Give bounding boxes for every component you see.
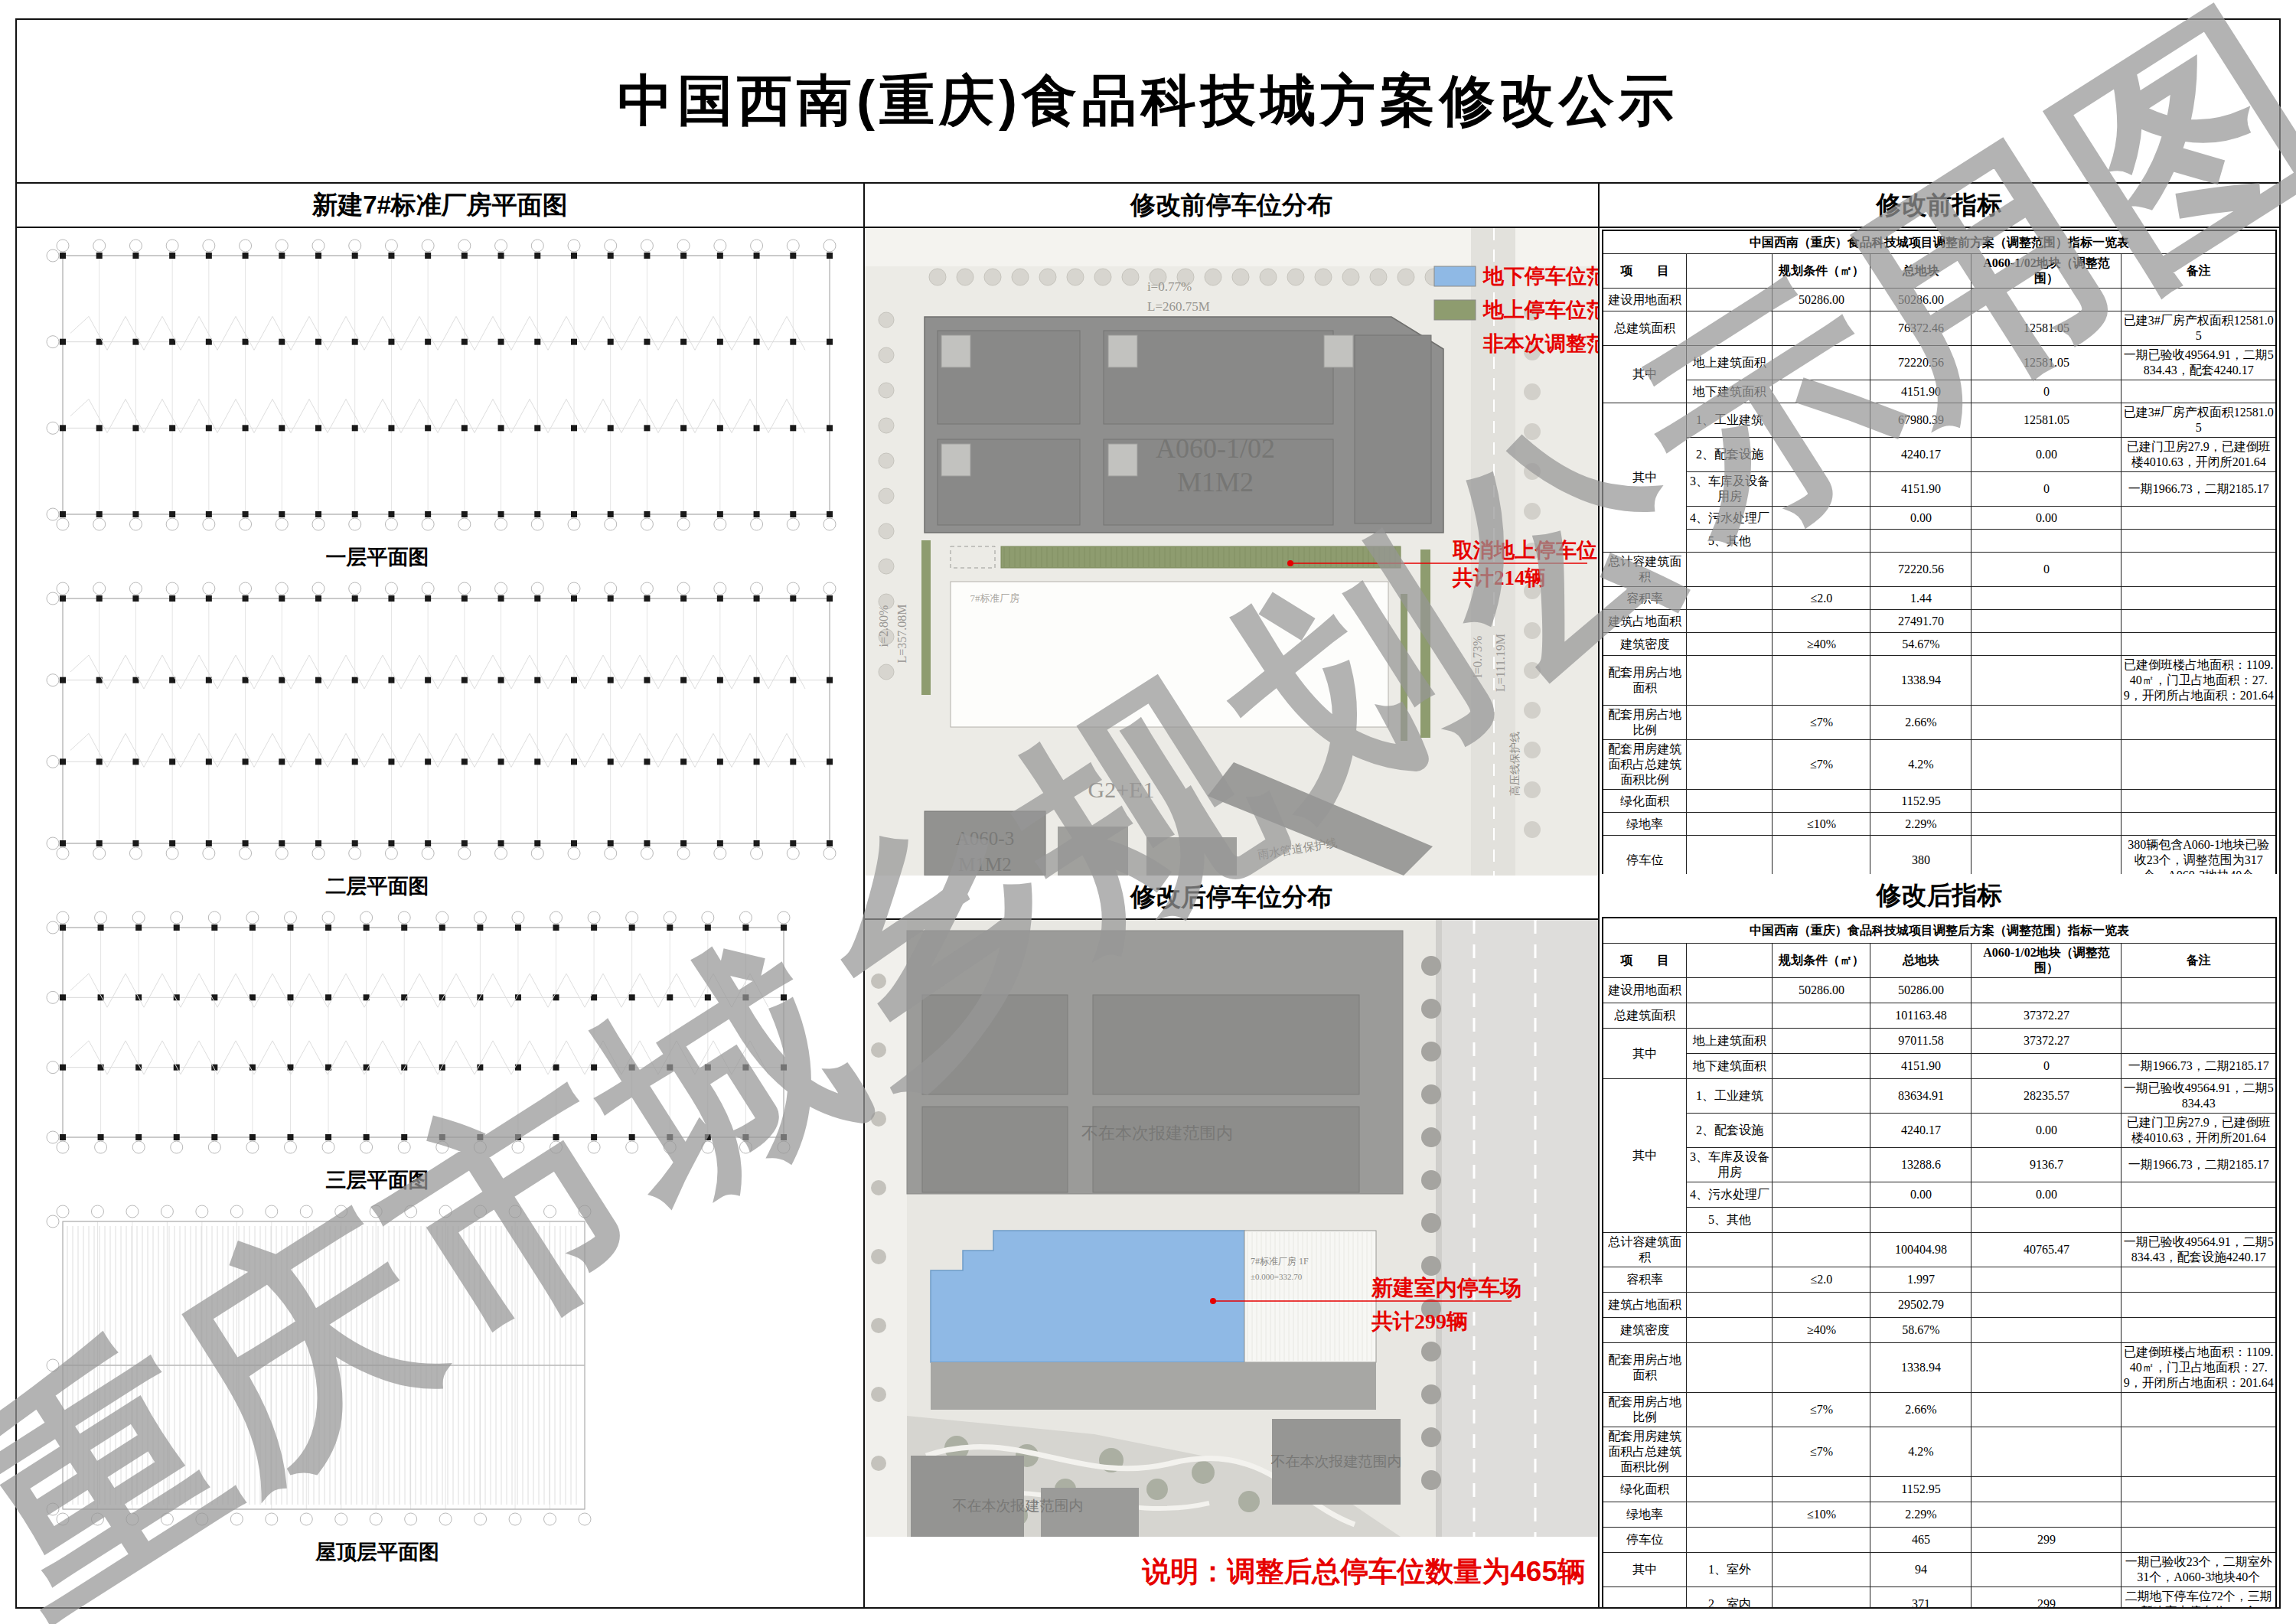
section-header-parking-before: 修改前停车位分布: [865, 184, 1600, 227]
table-cell: 83634.91: [1870, 1079, 1971, 1114]
table-cell: 其中: [1603, 1029, 1687, 1079]
table-cell: [1687, 254, 1773, 289]
indicator-table: 中国西南（重庆）食品科技城项目调整后方案（调整范围）指标一览表项 目规划条件（㎡…: [1602, 917, 2277, 1607]
table-cell: 2、配套设施: [1687, 438, 1773, 472]
map-label: i=0.77%: [1147, 279, 1192, 294]
legend-label: 地下停车位范围: [1482, 265, 1598, 288]
table-cell: [1687, 289, 1773, 311]
table-cell: [1971, 587, 2122, 610]
section-header-floorplans: 新建7#标准厂房平面图: [17, 184, 865, 227]
table-cell: 地上建筑面积: [1687, 1029, 1773, 1054]
table-cell: 绿化面积: [1603, 1477, 1687, 1502]
table-cell: 1338.94: [1870, 656, 1971, 706]
table-cell: [1971, 1393, 2122, 1427]
table-cell: 一期已验收49564.91，二期5834.43，配套4240.17: [2122, 346, 2276, 380]
table-cell: 配套用房占地比例: [1603, 1393, 1687, 1427]
plan-label: 一层平面图: [29, 540, 856, 571]
table-cell: 中国西南（重庆）食品科技城项目调整后方案（调整范围）指标一览表: [1603, 918, 2276, 944]
table-cell: 总地块: [1870, 254, 1971, 289]
floor-plan-drawing: [29, 906, 794, 1160]
table-cell: [1971, 813, 2122, 836]
table-cell: 0: [1971, 472, 2122, 507]
map-label: 高压线保护线: [1508, 732, 1521, 796]
table-cell: [1687, 633, 1773, 656]
table-cell: 1152.95: [1870, 790, 1971, 813]
table-cell: 72220.56: [1870, 346, 1971, 380]
table-cell: 4.2%: [1870, 740, 1971, 790]
table-cell: 0.00: [1971, 1114, 2122, 1148]
table-cell: [1687, 1318, 1773, 1343]
table-cell: 5、其他: [1687, 530, 1773, 553]
table-cell: [1773, 553, 1870, 587]
table-cell: [1687, 553, 1773, 587]
table-cell: 0: [1971, 380, 2122, 403]
table-cell: 3、车库及设备用房: [1687, 472, 1773, 507]
table-cell: [2122, 740, 2276, 790]
table-cell: 380辆包含A060-1地块已验收23个，调整范围为317个，A060-3地块4…: [2122, 836, 2276, 875]
table-cell: [1687, 1502, 1773, 1528]
table-cell: [1870, 1208, 1971, 1233]
excluded-area-label: 不在本次报建范围内: [953, 1498, 1084, 1514]
table-cell: [1687, 1267, 1773, 1293]
table-cell: 一期已验收49564.91，二期5834.43: [2122, 1079, 2276, 1114]
table-cell: 12581.05: [1971, 311, 2122, 346]
content-row: 一层平面图二层平面图三层平面图屋顶层平面图 i=0.77%L=260.75MA0…: [17, 228, 2279, 1607]
table-cell: 绿地率: [1603, 1502, 1687, 1528]
table-cell: 12581.05: [1971, 403, 2122, 438]
plan-label: 屋顶层平面图: [29, 1535, 856, 1566]
table-cell: [2122, 380, 2276, 403]
indicator-table-after: 中国西南（重庆）食品科技城项目调整后方案（调整范围）指标一览表项 目规划条件（㎡…: [1600, 917, 2279, 1607]
table-cell: 100404.98: [1870, 1233, 1971, 1267]
table-cell: 地下建筑面积: [1687, 1054, 1773, 1079]
table-cell: 建筑密度: [1603, 1318, 1687, 1343]
indoor-parking-building: [931, 1231, 1244, 1362]
table-cell: 67980.39: [1870, 403, 1971, 438]
table-cell: 其中: [1603, 1553, 1687, 1587]
table-cell: 建筑占地面积: [1603, 610, 1687, 633]
floor-plan-drawing: [29, 1200, 595, 1532]
floor-plan-block: 屋顶层平面图: [29, 1200, 856, 1566]
table-cell: [1687, 978, 1773, 1003]
table-cell: 0.00: [1971, 507, 2122, 530]
table-cell: 配套用房建筑面积占总建筑面积比例: [1603, 1427, 1687, 1477]
map-label: 7#标准厂房 1F: [1251, 1256, 1309, 1267]
map-label: M1M2: [1177, 467, 1254, 497]
table-cell: 规划条件（㎡）: [1773, 254, 1870, 289]
table-cell: [1971, 656, 2122, 706]
table-cell: 1152.95: [1870, 1477, 1971, 1502]
map-label: A060-3: [956, 828, 1014, 849]
floor-plan-drawing: [29, 577, 840, 866]
table-cell: 其中: [1603, 403, 1687, 553]
table-cell: 总计容建筑面积: [1603, 553, 1687, 587]
table-cell: [1971, 1477, 2122, 1502]
table-cell: 地上建筑面积: [1687, 346, 1773, 380]
table-cell: 94: [1870, 1553, 1971, 1587]
table-cell: 54.67%: [1870, 633, 1971, 656]
table-cell: [2122, 1393, 2276, 1427]
table-cell: [1773, 610, 1870, 633]
page-title: 中国西南(重庆)食品科技城方案修改公示: [618, 64, 1678, 138]
table-cell: [2122, 706, 2276, 740]
table-cell: 已建3#厂房产权面积12581.05: [2122, 311, 2276, 346]
table-cell: [2122, 1427, 2276, 1477]
table-cell: [1687, 610, 1773, 633]
table-cell: 1.997: [1870, 1267, 1971, 1293]
table-cell: [1773, 1477, 1870, 1502]
table-cell: 配套用房占地面积: [1603, 1343, 1687, 1393]
table-cell: [2122, 1182, 2276, 1208]
table-cell: ≤7%: [1773, 740, 1870, 790]
table-cell: [1971, 1553, 2122, 1587]
table-cell: 37372.27: [1971, 1029, 2122, 1054]
table-cell: 9136.7: [1971, 1148, 2122, 1182]
table-cell: [1773, 656, 1870, 706]
table-cell: [1687, 1477, 1773, 1502]
table-cell: [1687, 740, 1773, 790]
table-cell: [1687, 944, 1773, 978]
table-cell: 总计容建筑面积: [1603, 1233, 1687, 1267]
table-cell: [1773, 1293, 1870, 1318]
section-header-indicators-before: 修改前指标: [1600, 184, 2279, 227]
table-cell: [2122, 978, 2276, 1003]
legend-label: 地上停车位范围: [1482, 298, 1598, 321]
table-cell: 4151.90: [1870, 1054, 1971, 1079]
map-label: L=260.75M: [1147, 299, 1210, 314]
map-label: A060-1/02: [1156, 433, 1275, 464]
table-cell: 13288.6: [1870, 1148, 1971, 1182]
table-cell: 4、污水处理厂: [1687, 1182, 1773, 1208]
table-cell: [2122, 1003, 2276, 1029]
table-cell: [1687, 1003, 1773, 1029]
map-label: 7#标准厂房: [970, 592, 1020, 604]
table-cell: [1687, 587, 1773, 610]
table-cell: 1、工业建筑: [1687, 403, 1773, 438]
table-cell: [1971, 1208, 2122, 1233]
floor-plan-drawing: [29, 234, 840, 537]
floor-plan-block: 一层平面图: [29, 234, 856, 571]
table-cell: 总建筑面积: [1603, 1003, 1687, 1029]
table-cell: [1773, 1553, 1870, 1587]
table-cell: 299: [1971, 1528, 2122, 1553]
table-cell: 建筑密度: [1603, 633, 1687, 656]
parking-map-before: i=0.77%L=260.75MA060-1/02M1M27#标准厂房G2+E1…: [865, 228, 1598, 876]
annotation-new-parking: 共计299辆: [1371, 1309, 1468, 1333]
table-cell: ≤7%: [1773, 1427, 1870, 1477]
section-header-indicators-after: 修改后指标: [1600, 874, 2279, 917]
table-cell: [2122, 1528, 2276, 1553]
table-cell: 一期1966.73，二期2185.17: [2122, 1148, 2276, 1182]
table-cell: [1971, 530, 2122, 553]
table-cell: [1773, 1148, 1870, 1182]
table-cell: [1687, 1343, 1773, 1393]
table-cell: 建设用地面积: [1603, 289, 1687, 311]
table-cell: [1971, 1267, 2122, 1293]
table-cell: 一期已验收23个，二期室外31个，A060-3地块40个: [2122, 1553, 2276, 1587]
table-cell: [1773, 1208, 1870, 1233]
table-cell: [2122, 1267, 2276, 1293]
table-cell: [1773, 438, 1870, 472]
table-cell: 371: [1870, 1587, 1971, 1608]
section-headers: 新建7#标准厂房平面图 修改前停车位分布 修改前指标: [17, 184, 2279, 228]
table-cell: 配套用房建筑面积占总建筑面积比例: [1603, 740, 1687, 790]
table-cell: [2122, 587, 2276, 610]
table-cell: 建设用地面积: [1603, 978, 1687, 1003]
table-cell: 76372.46: [1870, 311, 1971, 346]
table-cell: 3、车库及设备用房: [1687, 1148, 1773, 1182]
legend-swatch: [1434, 266, 1476, 286]
table-cell: 停车位: [1603, 1528, 1687, 1553]
table-cell: 容积率: [1603, 1267, 1687, 1293]
table-cell: [1773, 1587, 1870, 1608]
section-header-parking-after: 修改后停车位分布: [865, 876, 1598, 920]
table-cell: ≤2.0: [1773, 1267, 1870, 1293]
table-cell: 中国西南（重庆）食品科技城项目调整前方案（调整范围）指标一览表: [1603, 230, 2276, 254]
table-cell: 已建倒班楼占地面积：1109.40㎡，门卫占地面积：27.9，开闭所占地面积：2…: [2122, 656, 2276, 706]
table-cell: 50286.00: [1773, 978, 1870, 1003]
table-cell: [1773, 1528, 1870, 1553]
map-label: L=357.08M: [895, 604, 908, 663]
table-cell: [1773, 1029, 1870, 1054]
table-cell: 2.29%: [1870, 1502, 1971, 1528]
table-cell: 一期已验收49564.91，二期5834.43，配套设施4240.17: [2122, 1233, 2276, 1267]
table-cell: 项 目: [1603, 944, 1687, 978]
table-cell: [2122, 1318, 2276, 1343]
title-band: 中国西南(重庆)食品科技城方案修改公示: [17, 20, 2279, 184]
table-cell: ≤7%: [1773, 706, 1870, 740]
table-cell: 97011.58: [1870, 1029, 1971, 1054]
table-cell: [2122, 1208, 2276, 1233]
table-cell: 1、室外: [1687, 1553, 1773, 1587]
table-cell: 1338.94: [1870, 1343, 1971, 1393]
table-cell: [1971, 1293, 2122, 1318]
table-cell: [1687, 836, 1773, 875]
site-map-before-drawing: i=0.77%L=260.75MA060-1/02M1M27#标准厂房G2+E1…: [865, 228, 1598, 876]
table-cell: 28235.57: [1971, 1079, 2122, 1114]
parking-map-after: 不在本次报建范围内7#标准厂房 1F±0.000=332.70新建室内停车场共计…: [865, 920, 1598, 1537]
table-cell: [2122, 507, 2276, 530]
table-cell: 4151.90: [1870, 472, 1971, 507]
table-cell: [1971, 610, 2122, 633]
table-cell: 72220.56: [1870, 553, 1971, 587]
table-cell: 2.29%: [1870, 813, 1971, 836]
table-cell: [2122, 1502, 2276, 1528]
plan-label: 二层平面图: [29, 869, 856, 900]
table-cell: 备注: [2122, 254, 2276, 289]
table-cell: 容积率: [1603, 587, 1687, 610]
public-notice-poster: 中国西南(重庆)食品科技城方案修改公示 新建7#标准厂房平面图 修改前停车位分布…: [0, 0, 2296, 1624]
table-cell: [1773, 311, 1870, 346]
table-cell: [1971, 740, 2122, 790]
table-cell: [1971, 1427, 2122, 1477]
table-cell: 2.66%: [1870, 706, 1971, 740]
map-label: i=2.80%: [877, 605, 890, 647]
table-cell: [1773, 1079, 1870, 1114]
table-cell: 4240.17: [1870, 1114, 1971, 1148]
table-cell: [1773, 380, 1870, 403]
table-cell: 地下建筑面积: [1687, 380, 1773, 403]
table-cell: [1971, 289, 2122, 311]
table-cell: [2122, 1477, 2276, 1502]
table-cell: [1971, 790, 2122, 813]
table-cell: [1687, 656, 1773, 706]
table-cell: [1687, 706, 1773, 740]
table-cell: [1773, 507, 1870, 530]
table-cell: [1971, 836, 2122, 875]
indicator-table-before: 中国西南（重庆）食品科技城项目调整前方案（调整范围）指标一览表项 目规划条件（㎡…: [1600, 228, 2279, 874]
table-cell: 停车位: [1603, 836, 1687, 875]
plan-label: 三层平面图: [29, 1163, 856, 1194]
table-cell: 配套用房占地面积: [1603, 656, 1687, 706]
table-cell: 37372.27: [1971, 1003, 2122, 1029]
annotation-cancel-parking: 共计214辆: [1452, 566, 1546, 589]
floor-plan-block: 二层平面图: [29, 577, 856, 900]
excluded-area-label: 不在本次报建范围内: [1081, 1123, 1233, 1143]
table-cell: [1687, 1293, 1773, 1318]
table-cell: [1687, 1427, 1773, 1477]
table-cell: [1773, 403, 1870, 438]
table-cell: 4240.17: [1870, 438, 1971, 472]
table-cell: 总建筑面积: [1603, 311, 1687, 346]
table-cell: [2122, 610, 2276, 633]
table-cell: 101163.48: [1870, 1003, 1971, 1029]
annotation-new-parking: 新建室内停车场: [1371, 1276, 1521, 1300]
table-cell: 29502.79: [1870, 1293, 1971, 1318]
table-cell: [2122, 633, 2276, 656]
table-cell: 4.2%: [1870, 1427, 1971, 1477]
table-cell: ≤2.0: [1773, 587, 1870, 610]
table-cell: [1971, 1318, 2122, 1343]
table-cell: 1、工业建筑: [1687, 1079, 1773, 1114]
table-cell: [1773, 472, 1870, 507]
table-cell: 2、室内: [1687, 1587, 1773, 1608]
table-cell: 40765.47: [1971, 1233, 2122, 1267]
table-cell: 1.44: [1870, 587, 1971, 610]
legend-label: 非本次调整范围: [1482, 332, 1598, 355]
floor-plan-block: 三层平面图: [29, 906, 856, 1194]
site-map-after-drawing: 不在本次报建范围内7#标准厂房 1F±0.000=332.70新建室内停车场共计…: [865, 920, 1598, 1537]
table-cell: 0.00: [1971, 438, 2122, 472]
floorplans-column: 一层平面图二层平面图三层平面图屋顶层平面图: [17, 228, 865, 1607]
table-cell: [1773, 790, 1870, 813]
map-label: M1M2: [958, 854, 1011, 875]
table-cell: 绿地率: [1603, 813, 1687, 836]
excluded-area-label: 不在本次报建范围内: [1271, 1453, 1402, 1469]
table-cell: 380: [1870, 836, 1971, 875]
table-cell: ≥40%: [1773, 633, 1870, 656]
table-cell: [1773, 1182, 1870, 1208]
table-cell: [1971, 1343, 2122, 1393]
table-cell: 299: [1971, 1587, 2122, 1608]
table-cell: ≤7%: [1773, 1393, 1870, 1427]
table-cell: [1773, 1114, 1870, 1148]
table-cell: 一期1966.73，二期2185.17: [2122, 1054, 2276, 1079]
table-cell: 其中: [1603, 346, 1687, 403]
table-cell: 备注: [2122, 944, 2276, 978]
table-cell: 0.00: [1971, 1182, 2122, 1208]
table-cell: 2、配套设施: [1687, 1114, 1773, 1148]
map-label: L=111.19M: [1494, 634, 1507, 692]
table-cell: 已建门卫房27.9，已建倒班楼4010.63，开闭所201.64: [2122, 438, 2276, 472]
table-cell: 0.00: [1870, 507, 1971, 530]
map-label: G2+E1: [1088, 777, 1155, 802]
table-cell: 0.00: [1870, 1182, 1971, 1208]
table-cell: [2122, 530, 2276, 553]
legend-swatch: [1434, 300, 1476, 320]
map-label: ±0.000=332.70: [1251, 1272, 1303, 1281]
table-cell: 二期地下停车位72个，三期新建室内停车位299个: [2122, 1587, 2276, 1608]
table-cell: [1971, 706, 2122, 740]
table-cell: 其中: [1603, 1079, 1687, 1233]
table-cell: [1773, 836, 1870, 875]
table-cell: 0: [1971, 553, 2122, 587]
table-cell: 一期1966.73，二期2185.17: [2122, 472, 2276, 507]
table-cell: 项 目: [1603, 254, 1687, 289]
table-cell: 配套用房占地比例: [1603, 706, 1687, 740]
table-cell: [1773, 1054, 1870, 1079]
table-cell: [1773, 1343, 1870, 1393]
table-cell: 27491.70: [1870, 610, 1971, 633]
table-cell: 规划条件（㎡）: [1773, 944, 1870, 978]
table-cell: [1603, 1587, 1687, 1608]
table-cell: 4、污水处理厂: [1687, 507, 1773, 530]
indicator-table: 中国西南（重庆）食品科技城项目调整前方案（调整范围）指标一览表项 目规划条件（㎡…: [1602, 230, 2277, 874]
table-cell: [1687, 1393, 1773, 1427]
table-cell: 2.66%: [1870, 1393, 1971, 1427]
table-cell: 0: [1971, 1054, 2122, 1079]
table-cell: [1687, 813, 1773, 836]
table-cell: [1687, 311, 1773, 346]
table-cell: 已建倒班楼占地面积：1109.40㎡，门卫占地面积：27.9，开闭所占地面积：2…: [2122, 1343, 2276, 1393]
table-cell: 12581.05: [1971, 346, 2122, 380]
table-cell: [1870, 530, 1971, 553]
table-cell: ≥40%: [1773, 1318, 1870, 1343]
table-cell: [1773, 1003, 1870, 1029]
table-cell: [1687, 1233, 1773, 1267]
table-cell: 50286.00: [1870, 289, 1971, 311]
table-cell: 4151.90: [1870, 380, 1971, 403]
table-cell: [1971, 1502, 2122, 1528]
table-cell: [1971, 633, 2122, 656]
table-cell: [2122, 790, 2276, 813]
table-cell: ≤10%: [1773, 1502, 1870, 1528]
indicator-tables-column: 中国西南（重庆）食品科技城项目调整前方案（调整范围）指标一览表项 目规划条件（㎡…: [1600, 228, 2279, 1607]
annotation-cancel-parking: 取消地上停车位: [1452, 539, 1597, 562]
document-frame: 中国西南(重庆)食品科技城方案修改公示 新建7#标准厂房平面图 修改前停车位分布…: [15, 18, 2281, 1609]
table-cell: [1773, 530, 1870, 553]
table-cell: A060-1/02地块（调整范围）: [1971, 944, 2122, 978]
table-cell: [2122, 553, 2276, 587]
table-cell: [1773, 1233, 1870, 1267]
map-label: i=0.73%: [1471, 636, 1484, 678]
table-cell: [2122, 289, 2276, 311]
table-cell: 465: [1870, 1528, 1971, 1553]
table-cell: 50286.00: [1870, 978, 1971, 1003]
table-cell: [1687, 790, 1773, 813]
table-cell: [2122, 1029, 2276, 1054]
table-cell: [2122, 1293, 2276, 1318]
table-cell: A060-1/02地块（调整范围）: [1971, 254, 2122, 289]
table-cell: [2122, 813, 2276, 836]
table-cell: ≤10%: [1773, 813, 1870, 836]
total-parking-note: 说明：调整后总停车位数量为465辆: [865, 1537, 1598, 1607]
table-cell: [1773, 346, 1870, 380]
table-cell: 58.67%: [1870, 1318, 1971, 1343]
table-cell: [1687, 1528, 1773, 1553]
table-cell: 绿化面积: [1603, 790, 1687, 813]
table-cell: 已建3#厂房产权面积12581.05: [2122, 403, 2276, 438]
